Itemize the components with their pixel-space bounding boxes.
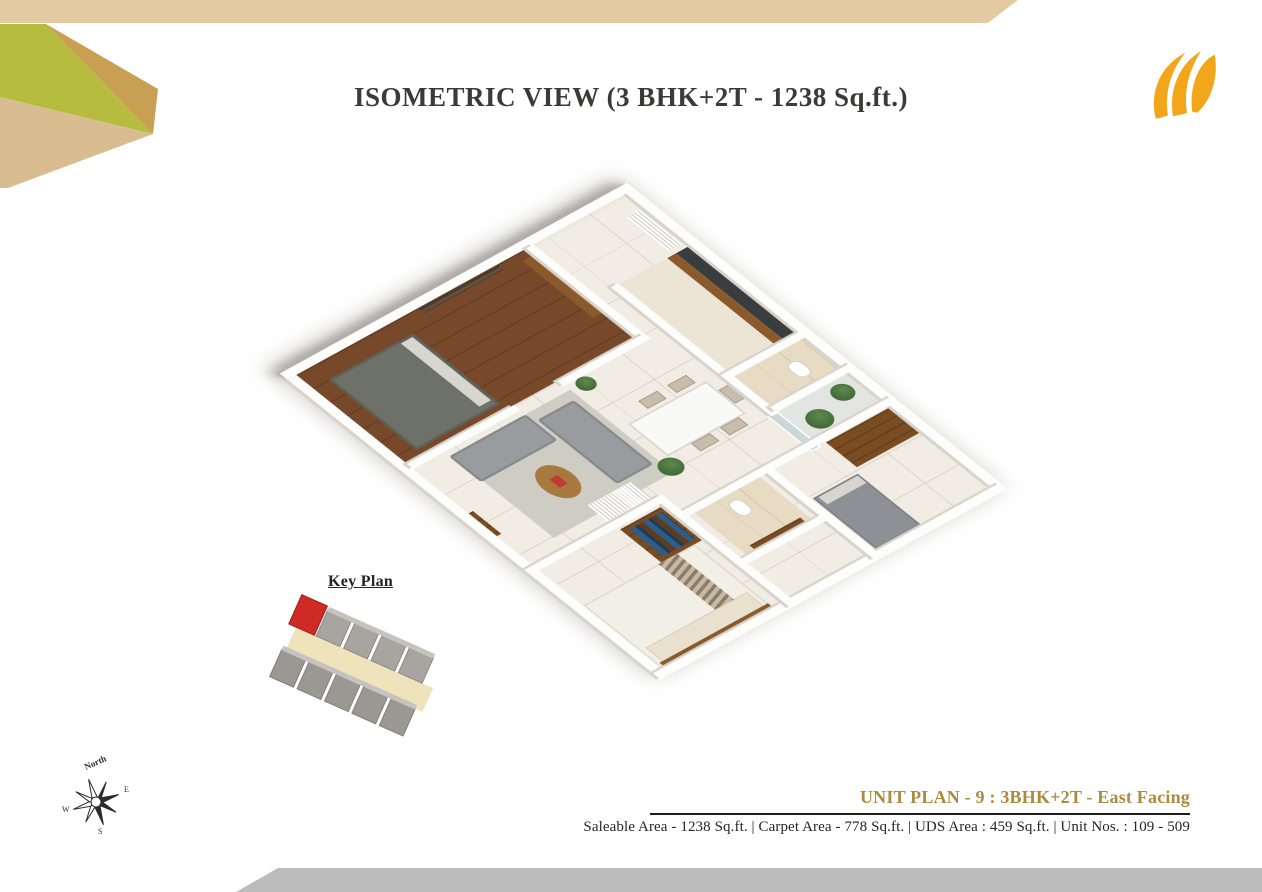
key-plan-label: Key Plan <box>328 573 393 591</box>
brochure-page: { "header": { "title": "ISOMETRIC VIEW (… <box>0 0 1262 892</box>
top-tan-strip <box>0 0 1018 23</box>
key-plan-building <box>256 590 460 750</box>
compass-east-label: E <box>124 785 129 794</box>
compass-west-label: W <box>62 805 70 814</box>
unit-plan-title: UNIT PLAN - 9 : 3BHK+2T - East Facing <box>860 787 1190 808</box>
footer-divider <box>650 813 1190 815</box>
area-details: Saleable Area - 1238 Sq.ft. | Carpet Are… <box>583 819 1190 836</box>
compass-rose-icon: North E W S <box>56 756 136 838</box>
compass-north-label: North <box>83 756 108 772</box>
page-title: ISOMETRIC VIEW (3 BHK+2T - 1238 Sq.ft.) <box>0 82 1262 113</box>
compass-south-label: S <box>98 827 102 836</box>
bottom-gray-bar <box>236 868 1262 892</box>
